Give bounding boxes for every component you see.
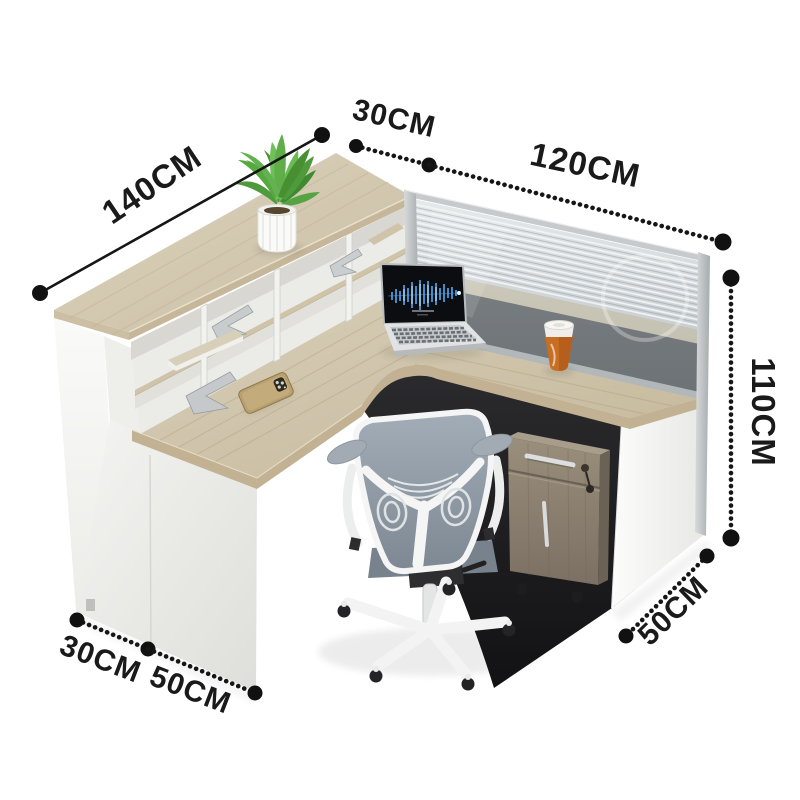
plant-pot	[258, 205, 296, 253]
plant-leaves	[236, 134, 320, 206]
drawer-lock	[581, 464, 589, 472]
dim-counter-length-label: 140CM	[95, 138, 208, 231]
dim-overall-height: 110CM	[723, 270, 783, 547]
dim-hutch-depth: 30CM	[349, 93, 439, 172]
dim-desk-length-label: 120CM	[527, 135, 644, 194]
product-image: 140CM 30CM 120CM 110CM 50CM	[0, 0, 800, 800]
dim-overall-height-label: 110CM	[745, 357, 782, 467]
desk-scene: 140CM 30CM 120CM 110CM 50CM	[0, 0, 800, 800]
dim-hutch-depth-label: 30CM	[349, 93, 438, 144]
dim-end-depth-hutch-label: 30CM	[55, 629, 145, 690]
dim-desk-depth-label: 50CM	[632, 570, 715, 652]
